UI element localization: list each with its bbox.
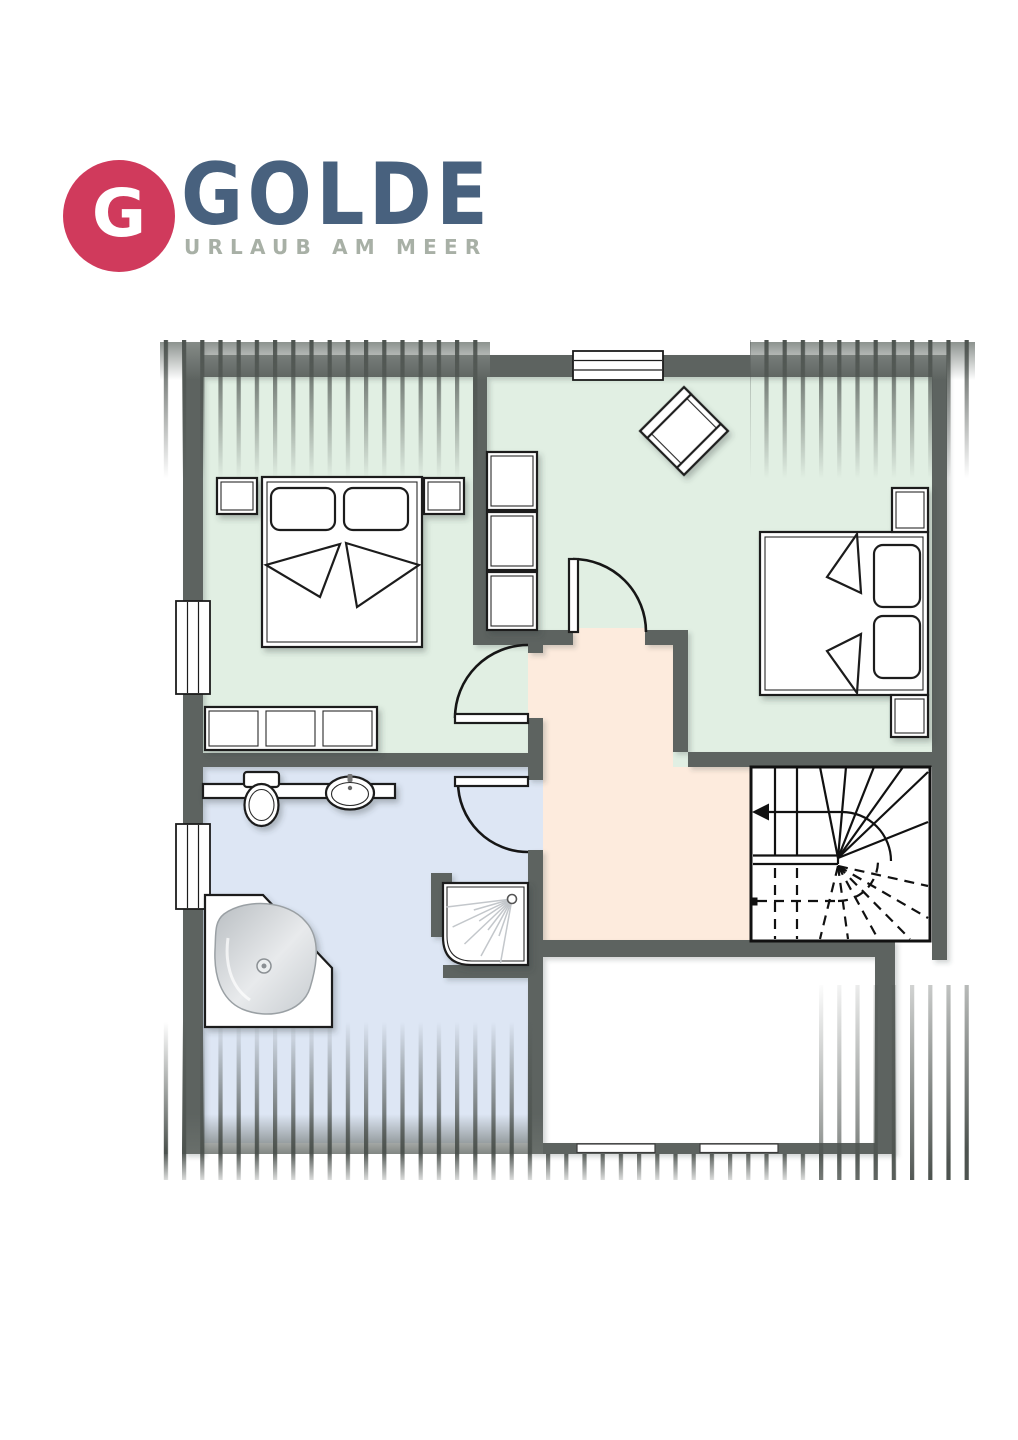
nightstand-right-b <box>891 695 928 737</box>
hatch-bottom-teeth <box>160 1154 895 1180</box>
doorway-gap-bedroom-left <box>528 653 543 718</box>
wall-hall-right <box>673 630 688 752</box>
doorway-gap-bathroom <box>528 780 543 850</box>
window-bottom-room-right <box>700 1144 778 1153</box>
window-bedroom-left <box>176 601 210 694</box>
wall-shower-stub-b <box>443 965 530 978</box>
wall-stairs-top <box>688 752 947 767</box>
wall-door-stub-mid <box>528 718 543 780</box>
hatch-bathroom-bottom <box>160 1022 543 1154</box>
hatch-top-left <box>160 340 490 478</box>
shower <box>443 883 528 965</box>
shelf-unit-right-bedroom <box>487 452 537 630</box>
pillow <box>874 616 920 678</box>
doorway-gap-right-room <box>573 628 645 647</box>
floor-plan <box>0 0 1018 1440</box>
double-bed-left <box>262 477 422 647</box>
sideboard-left-bedroom <box>205 707 377 750</box>
wall-hall-top-a <box>473 630 573 645</box>
toilet <box>244 772 279 826</box>
nightstand-left-b <box>424 478 464 514</box>
window-bedroom-right <box>573 351 663 380</box>
pillow <box>271 488 335 530</box>
staircase <box>750 767 931 941</box>
faucet-icon <box>348 774 353 782</box>
wall-bath-top <box>183 753 528 767</box>
wall-stairs-bottom <box>528 940 895 957</box>
double-bed-right <box>760 532 928 695</box>
shower-head <box>508 895 517 904</box>
floorplan-page: G GOLDE URLAUB AM MEER <box>0 0 1018 1440</box>
hatch-bottom-right-corner <box>815 985 975 1180</box>
window-bottom-room-left <box>577 1144 655 1153</box>
nightstand-right-a <box>892 488 928 532</box>
pillow <box>344 488 408 530</box>
hatch-top-right <box>750 340 975 478</box>
wall-door-stub-upper <box>528 630 543 653</box>
pillow <box>874 545 920 607</box>
stair-start-marker <box>750 898 758 906</box>
nightstand-left-a <box>217 478 257 514</box>
